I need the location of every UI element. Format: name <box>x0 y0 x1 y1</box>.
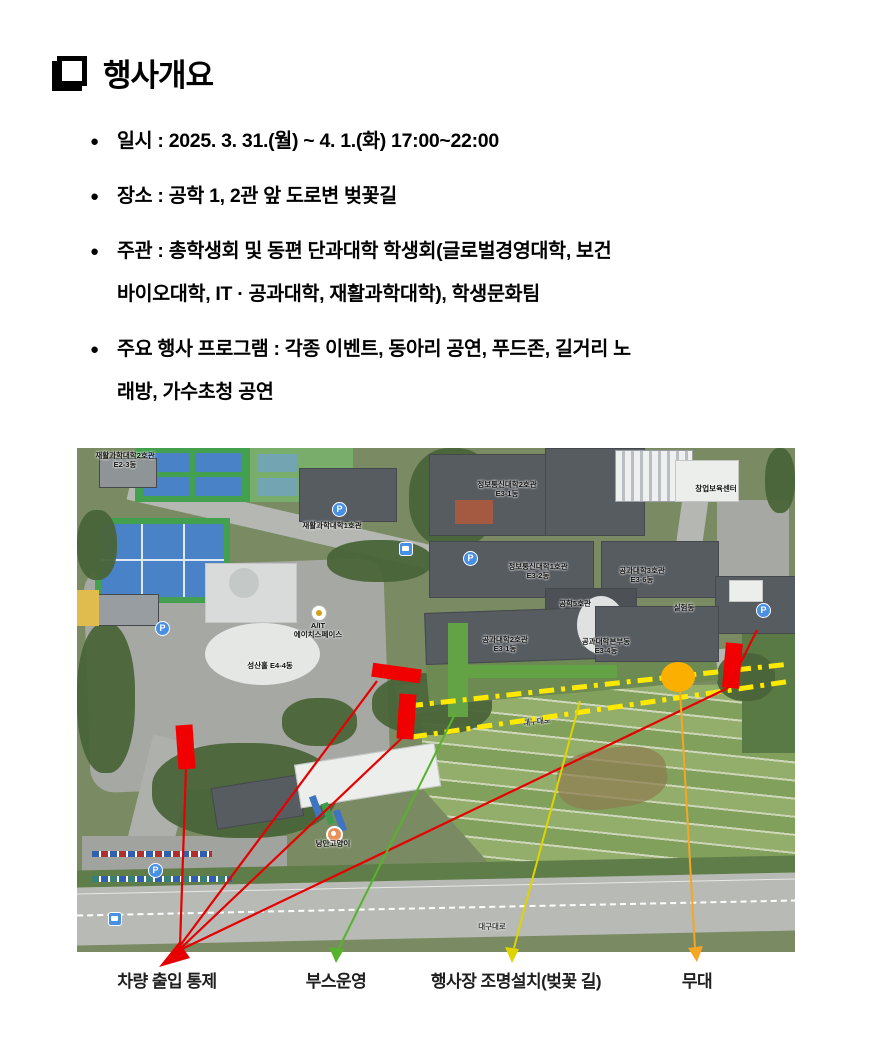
list-item-text: 일시 : 2025. 3. 31.(월) ~ 4. 1.(화) 17:00~22… <box>117 120 850 163</box>
event-overview-list: ● 일시 : 2025. 3. 31.(월) ~ 4. 1.(화) 17:00~… <box>90 120 850 426</box>
map-building-label: 재활과학대학2호관 E2-3동 <box>95 452 154 469</box>
tennis-court <box>195 477 241 496</box>
map-building <box>299 468 397 522</box>
map-trees <box>282 698 357 746</box>
legend-stage: 무대 <box>682 967 712 992</box>
list-item-location: ● 장소 : 공학 1, 2관 앞 도로변 벚꽃길 <box>90 175 850 218</box>
parking-icon: P <box>756 603 771 618</box>
bus-stop-icon <box>399 542 413 556</box>
map-building <box>77 590 99 626</box>
parking-icon: P <box>463 551 478 566</box>
map-trees <box>717 653 775 701</box>
map-building <box>675 460 739 502</box>
map-trees <box>327 540 432 582</box>
map-trees <box>765 448 795 513</box>
map-trees <box>77 623 135 773</box>
map-building-label: 실험동 <box>674 604 695 613</box>
tennis-court-line <box>141 524 143 597</box>
legend-vehicle-control: 차량 출입 통제 <box>117 967 216 992</box>
legend-booth: 부스운영 <box>306 967 367 992</box>
tennis-court-line <box>183 524 185 597</box>
bullet-icon: ● <box>90 230 99 273</box>
map-building-roof <box>455 500 493 524</box>
map-car-row <box>92 876 232 882</box>
tennis-court <box>257 478 297 496</box>
bullet-icon: ● <box>90 120 99 163</box>
page-title: 행사개요 <box>103 50 213 95</box>
map-car-row <box>92 851 212 857</box>
map-building-label: 정보통신대학2호관 E3-1동 <box>477 481 536 498</box>
parking-icon: P <box>155 621 170 636</box>
map-building-label: 공과대학2호관 E3-1동 <box>482 636 528 653</box>
map-building-label: 낭만고양이 <box>316 840 351 849</box>
map-building <box>97 594 159 626</box>
map-building-dome <box>229 568 259 598</box>
map-road-label: 대구대로 <box>478 923 506 932</box>
tennis-court-line <box>101 559 224 561</box>
bus-stop-icon <box>108 912 122 926</box>
list-item-organizer: ● 주관 : 총학생회 및 동편 단과대학 학생회(글로벌경영대학, 보건 바이… <box>90 230 850 316</box>
bullet-icon: ● <box>90 328 99 371</box>
map-building-label: A/IT 에이치스페이스 <box>294 622 342 639</box>
bullet-icon: ● <box>90 175 99 218</box>
list-item-text: 주관 : 총학생회 및 동편 단과대학 학생회(글로벌경영대학, 보건 <box>117 230 850 273</box>
list-item-text: 래방, 가수초청 공연 <box>117 371 850 414</box>
parking-icon: P <box>148 863 163 878</box>
satellite-map-image: P P P P P 재활과학대학2호관 E2-3동 재활과학대학1호관 정보통신… <box>77 448 795 952</box>
map-building-label: 창업보육센터 <box>695 485 736 494</box>
document-page: 행사개요 ● 일시 : 2025. 3. 31.(월) ~ 4. 1.(화) 1… <box>0 0 869 1058</box>
map-building-label: 공과대학본부동 E3-4동 <box>582 638 630 655</box>
map-building-label: 재활과학대학1호관 <box>302 522 361 531</box>
legend-lighting: 행사장 조명설치(벚꽃 길) <box>431 967 601 992</box>
list-item-text: 주요 행사 프로그램 : 각종 이벤트, 동아리 공연, 푸드존, 길거리 노 <box>117 328 850 371</box>
map-building-label: 공학5호관 <box>559 600 591 609</box>
map-building-label: 성산홀 E4-4동 <box>247 662 293 671</box>
list-item-datetime: ● 일시 : 2025. 3. 31.(월) ~ 4. 1.(화) 17:00~… <box>90 120 850 163</box>
map-building <box>729 580 763 602</box>
tennis-court <box>257 454 297 472</box>
map-lane-line <box>77 899 795 916</box>
tennis-court <box>195 453 241 472</box>
list-item-text: 바이오대학, IT · 공과대학, 재활과학대학), 학생문화팀 <box>117 273 850 316</box>
shadowed-square-icon <box>57 56 87 86</box>
list-item-programs: ● 주요 행사 프로그램 : 각종 이벤트, 동아리 공연, 푸드존, 길거리 … <box>90 328 850 414</box>
map-trees <box>77 510 117 580</box>
document-header: 행사개요 <box>52 50 213 95</box>
parking-icon: P <box>332 502 347 517</box>
map-building-label: 공과대학3호관 E3-6동 <box>619 567 665 584</box>
list-item-text: 장소 : 공학 1, 2관 앞 도로변 벚꽃길 <box>117 175 850 218</box>
map-building-label: 정보통신대학1호관 E3-2동 <box>508 563 567 580</box>
poi-space-icon <box>311 605 327 621</box>
